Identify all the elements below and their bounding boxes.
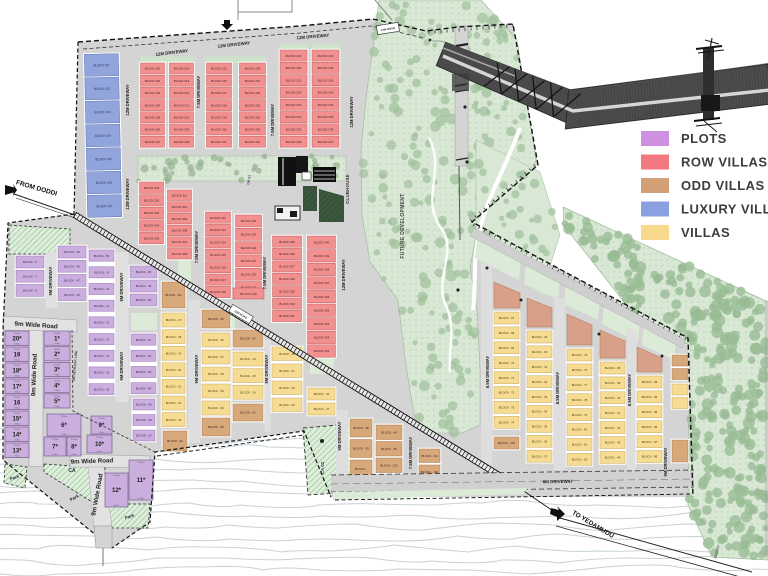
svg-text:BLOCK - 26: BLOCK - 26 <box>240 390 256 394</box>
svg-text:BLOCK 309: BLOCK 309 <box>172 217 188 221</box>
svg-text:BLOCK 225: BLOCK 225 <box>245 103 261 107</box>
svg-text:15.24m: 15.24m <box>138 462 145 464</box>
svg-text:ODD VILLAS: ODD VILLAS <box>681 178 765 193</box>
svg-text:15.24m: 15.24m <box>14 333 21 335</box>
svg-text:BLOCK 220: BLOCK 220 <box>211 128 227 132</box>
svg-text:BLOCK 231: BLOCK 231 <box>286 78 302 82</box>
svg-text:BLOCK - 78: BLOCK - 78 <box>572 398 588 402</box>
svg-text:BLOCK 302: BLOCK 302 <box>144 199 160 203</box>
svg-text:BLOCK - 39: BLOCK - 39 <box>605 381 621 385</box>
svg-text:BLOCK 229: BLOCK 229 <box>286 54 302 58</box>
svg-text:BLOCK - 6A: BLOCK - 6A <box>422 454 438 458</box>
svg-text:BLOCK - 62: BLOCK - 62 <box>279 386 295 390</box>
svg-text:BLOCK 102: BLOCK 102 <box>94 87 110 91</box>
svg-text:BLOCK 322: BLOCK 322 <box>241 246 257 250</box>
svg-text:BLOCK 227: BLOCK 227 <box>245 79 261 83</box>
svg-text:7.5M DRIVEWAY: 7.5M DRIVEWAY <box>262 257 267 290</box>
svg-text:BLOCK - 36: BLOCK - 36 <box>532 440 548 444</box>
svg-text:BLOCK 244: BLOCK 244 <box>318 54 334 58</box>
svg-text:9M DRIVEWAY: 9M DRIVEWAY <box>48 266 53 295</box>
svg-text:BLOCK - 86: BLOCK - 86 <box>642 425 658 429</box>
svg-text:BLOCK - 96: BLOCK - 96 <box>136 270 152 274</box>
svg-text:12M DRIVEWAY: 12M DRIVEWAY <box>125 84 130 115</box>
svg-text:BLOCK 201: BLOCK 201 <box>145 67 161 71</box>
svg-text:BLOCK - 85: BLOCK - 85 <box>642 410 658 414</box>
svg-text:CA: CA <box>68 468 76 474</box>
svg-text:BLOCK 301: BLOCK 301 <box>144 186 160 190</box>
svg-text:BLOCK 313: BLOCK 313 <box>210 228 226 232</box>
svg-text:BLOCK - 18: BLOCK - 18 <box>166 335 182 339</box>
svg-text:BLOCK - 94: BLOCK - 94 <box>167 439 183 443</box>
svg-text:BLOCK 236: BLOCK 236 <box>286 140 302 144</box>
svg-text:BLOCK - 11: BLOCK - 11 <box>94 304 110 308</box>
svg-text:BLOCK 327: BLOCK 327 <box>279 265 295 269</box>
svg-text:11*: 11* <box>137 478 146 484</box>
svg-text:15.24m: 15.24m <box>61 416 68 418</box>
svg-text:BLOCK 213: BLOCK 213 <box>174 79 190 83</box>
svg-text:BLOCK 240: BLOCK 240 <box>318 103 334 107</box>
svg-text:BLOCK - 56: BLOCK - 56 <box>208 338 224 342</box>
svg-text:12*: 12* <box>112 488 122 494</box>
svg-text:BLOCK 335: BLOCK 335 <box>314 308 330 312</box>
svg-text:BLOCK - 17: BLOCK - 17 <box>166 318 182 322</box>
svg-text:18*: 18* <box>12 369 22 375</box>
svg-text:BLOCK 232: BLOCK 232 <box>286 91 302 95</box>
svg-text:BLOCK - 79: BLOCK - 79 <box>572 413 588 417</box>
svg-text:BLOCK 317: BLOCK 317 <box>210 278 226 282</box>
svg-text:BLOCK - 54: BLOCK - 54 <box>136 386 152 390</box>
svg-text:BLOCK - 99: BLOCK - 99 <box>353 447 369 451</box>
svg-text:BLOCK 106: BLOCK 106 <box>96 181 112 185</box>
svg-text:BLOCK 209: BLOCK 209 <box>174 128 190 132</box>
svg-text:15.24m: 15.24m <box>14 381 21 383</box>
svg-text:9M DRIVEWAY: 9M DRIVEWAY <box>337 421 342 450</box>
svg-text:BLOCK - 49: BLOCK - 49 <box>136 284 152 288</box>
svg-text:BLOCK 205: BLOCK 205 <box>145 116 161 120</box>
svg-text:BLOCK - 61: BLOCK - 61 <box>240 411 256 415</box>
svg-text:BLOCK - 60: BLOCK - 60 <box>208 406 224 410</box>
svg-text:8.5M DRIVEWAY: 8.5M DRIVEWAY <box>627 374 632 407</box>
svg-text:BLOCK 330: BLOCK 330 <box>279 302 295 306</box>
svg-text:BLOCK 224: BLOCK 224 <box>245 116 261 120</box>
svg-text:BLOCK - 35: BLOCK - 35 <box>532 425 548 429</box>
svg-text:15.24m: 15.24m <box>14 429 21 431</box>
svg-text:15.24m: 15.24m <box>54 380 61 382</box>
svg-text:BLOCK - 80: BLOCK - 80 <box>572 428 588 432</box>
svg-text:12M DRIVEWAY: 12M DRIVEWAY <box>341 259 346 290</box>
svg-text:BLOCK 230: BLOCK 230 <box>286 66 302 70</box>
svg-text:BLOCK 103: BLOCK 103 <box>94 110 110 114</box>
svg-text:15.24m: 15.24m <box>52 439 59 441</box>
svg-text:BLOCK - 42: BLOCK - 42 <box>605 426 621 430</box>
svg-text:10*: 10* <box>95 442 105 448</box>
svg-text:BLOCK 306: BLOCK 306 <box>172 252 188 256</box>
svg-text:BLOCK - 43: BLOCK - 43 <box>605 441 621 445</box>
svg-text:BLOCK 321: BLOCK 321 <box>241 259 257 263</box>
svg-text:BLOCK 218: BLOCK 218 <box>211 103 227 107</box>
svg-text:9M DRIVEWAY: 9M DRIVEWAY <box>194 354 199 383</box>
svg-text:9.14m: 9.14m <box>14 455 20 457</box>
svg-text:9.14m: 9.14m <box>54 390 60 392</box>
svg-text:9.14m: 9.14m <box>99 432 105 434</box>
svg-text:15.24m: 15.24m <box>113 475 120 477</box>
svg-text:9.14m: 9.14m <box>54 359 60 361</box>
svg-text:8*: 8* <box>71 445 77 451</box>
svg-text:BLOCK - 34: BLOCK - 34 <box>532 410 548 414</box>
svg-text:BLOCK - 87: BLOCK - 87 <box>642 440 658 444</box>
svg-text:4*: 4* <box>54 383 60 389</box>
svg-text:BLOCK - 19: BLOCK - 19 <box>166 351 182 355</box>
svg-text:BLOCK - 41: BLOCK - 41 <box>605 411 621 415</box>
svg-text:BLOCK 334: BLOCK 334 <box>314 322 330 326</box>
svg-text:BLOCK 331: BLOCK 331 <box>279 314 295 318</box>
svg-text:BLOCK 216: BLOCK 216 <box>211 79 227 83</box>
svg-text:BLOCK 318: BLOCK 318 <box>210 290 226 294</box>
svg-text:BLOCK 324: BLOCK 324 <box>241 219 257 223</box>
svg-text:9.14m: 9.14m <box>14 391 20 393</box>
svg-text:BLOCK - 97: BLOCK - 97 <box>240 337 256 341</box>
svg-text:BLOCK - 37: BLOCK - 37 <box>532 454 548 458</box>
svg-text:BLOCK - 51: BLOCK - 51 <box>136 338 152 342</box>
svg-text:BLOCK 211: BLOCK 211 <box>174 103 190 107</box>
svg-text:BLOCK 239: BLOCK 239 <box>318 115 334 119</box>
svg-text:9.14m: 9.14m <box>54 374 60 376</box>
svg-text:BLOCK - 57: BLOCK - 57 <box>136 434 152 438</box>
svg-text:BLOCK - 59: BLOCK - 59 <box>208 389 224 393</box>
svg-text:BLOCK 234: BLOCK 234 <box>286 115 302 119</box>
svg-text:BLOCK - 25: BLOCK - 25 <box>240 374 256 378</box>
svg-text:BLOCK - 15: BLOCK - 15 <box>94 371 110 375</box>
svg-text:9.14m: 9.14m <box>54 343 60 345</box>
svg-text:BLOCK - 9A: BLOCK - 9A <box>166 293 182 297</box>
svg-text:BLOCK - 74: BLOCK - 74 <box>499 421 515 425</box>
svg-text:12M DRIVEWAY: 12M DRIVEWAY <box>125 178 130 209</box>
svg-text:7.5M DRIVEWAY: 7.5M DRIVEWAY <box>196 76 201 109</box>
svg-text:17*: 17* <box>12 385 22 391</box>
svg-text:BLOCK - 27: BLOCK - 27 <box>314 407 330 411</box>
svg-text:BLOCK - 71: BLOCK - 71 <box>499 376 515 380</box>
svg-text:BLOCK 237: BLOCK 237 <box>318 140 334 144</box>
svg-text:BLOCK - 63: BLOCK - 63 <box>279 403 295 407</box>
svg-text:BLOCK 325: BLOCK 325 <box>279 240 295 244</box>
svg-text:BLOCK - 50: BLOCK - 50 <box>136 298 152 302</box>
svg-text:8.5M DRIVEWAY: 8.5M DRIVEWAY <box>485 356 490 389</box>
svg-text:BLOCK 212: BLOCK 212 <box>174 91 190 95</box>
svg-text:BLOCK 337: BLOCK 337 <box>314 281 330 285</box>
svg-text:BLOCK 226: BLOCK 226 <box>245 91 261 95</box>
svg-text:BLOCK 235: BLOCK 235 <box>286 128 302 132</box>
svg-text:BLOCK - 68: BLOCK - 68 <box>499 331 515 335</box>
svg-text:5*: 5* <box>54 399 60 405</box>
svg-text:19: 19 <box>14 353 21 359</box>
svg-text:BLOCK 332: BLOCK 332 <box>314 349 330 353</box>
svg-text:9M DRIVEWAY: 9M DRIVEWAY <box>119 272 124 301</box>
svg-text:BLOCK - 96: BLOCK - 96 <box>208 425 224 429</box>
svg-text:BLOCK 105: BLOCK 105 <box>95 157 111 161</box>
svg-text:9.14m: 9.14m <box>97 451 103 453</box>
svg-text:15.24m: 15.24m <box>71 439 78 441</box>
svg-text:BLOCK 215: BLOCK 215 <box>211 67 227 71</box>
svg-text:20*: 20* <box>12 337 22 343</box>
svg-text:BLOCK 323: BLOCK 323 <box>241 233 257 237</box>
svg-text:BLOCK - 57: BLOCK - 57 <box>208 355 224 359</box>
svg-text:BLOCK - 48: BLOCK - 48 <box>64 293 80 297</box>
svg-text:BLOCK - 72: BLOCK - 72 <box>499 391 515 395</box>
svg-text:9.14m: 9.14m <box>14 423 20 425</box>
svg-text:BLOCK 303: BLOCK 303 <box>144 211 160 215</box>
svg-text:BLOCK - 31: BLOCK - 31 <box>532 365 548 369</box>
svg-text:9.14m: 9.14m <box>114 505 120 507</box>
svg-text:9.14m: 9.14m <box>54 406 60 408</box>
svg-text:BLOCK - 82: BLOCK - 82 <box>572 458 588 462</box>
svg-text:BLOCK 320: BLOCK 320 <box>241 272 257 276</box>
svg-text:BLOCK - 16: BLOCK - 16 <box>94 387 110 391</box>
svg-text:BLOCK - 83: BLOCK - 83 <box>642 380 658 384</box>
svg-text:9M DRIVEWAY: 9M DRIVEWAY <box>264 354 269 383</box>
svg-text:1*: 1* <box>54 336 60 342</box>
svg-text:VILLAS: VILLAS <box>681 225 730 240</box>
svg-text:BLOCK - 44: BLOCK - 44 <box>605 456 621 460</box>
svg-text:BLOCK - 95: BLOCK - 95 <box>208 317 224 321</box>
svg-text:9.14m: 9.14m <box>52 454 58 456</box>
svg-text:BLOCK - 45: BLOCK - 45 <box>64 250 80 254</box>
svg-text:BLOCK - 81: BLOCK - 81 <box>572 443 588 447</box>
svg-text:BLOCK - 107: BLOCK - 107 <box>498 441 516 445</box>
svg-text:BLOCK - 6: BLOCK - 6 <box>23 260 37 264</box>
svg-text:7*: 7* <box>52 445 58 451</box>
svg-text:BLOCK - 53: BLOCK - 53 <box>136 370 152 374</box>
svg-text:BLOCK - 73: BLOCK - 73 <box>499 406 515 410</box>
svg-text:BLOCK - 22: BLOCK - 22 <box>166 401 182 405</box>
svg-text:BLOCK - 32: BLOCK - 32 <box>532 380 548 384</box>
svg-text:BLOCK 104: BLOCK 104 <box>95 134 111 138</box>
svg-text:15.24m: 15.24m <box>14 349 21 351</box>
svg-text:3*: 3* <box>54 368 60 374</box>
svg-text:BLOCK - 47: BLOCK - 47 <box>64 279 80 283</box>
svg-text:BLOCK 214: BLOCK 214 <box>174 67 190 71</box>
svg-text:BLOCK - 12: BLOCK - 12 <box>94 321 110 325</box>
svg-text:LUXURY VILLAS: LUXURY VILLAS <box>681 202 768 217</box>
svg-text:BLOCK - 9: BLOCK - 9 <box>95 271 109 275</box>
svg-text:BLOCK 203: BLOCK 203 <box>145 91 161 95</box>
svg-text:BLOCK - 64: BLOCK - 64 <box>381 430 397 434</box>
svg-text:7.5M DRIVEWAY: 7.5M DRIVEWAY <box>194 231 199 264</box>
svg-text:BLOCK - 33: BLOCK - 33 <box>532 395 548 399</box>
svg-text:9.14m: 9.14m <box>14 359 20 361</box>
svg-text:BLOCK 208: BLOCK 208 <box>174 140 190 144</box>
svg-text:BLOCK 339: BLOCK 339 <box>314 254 330 258</box>
svg-text:BLOCK 242: BLOCK 242 <box>318 78 334 82</box>
svg-text:9M DRIVEWAY: 9M DRIVEWAY <box>663 447 668 476</box>
svg-text:14*: 14* <box>12 433 22 439</box>
svg-text:BLOCK - 24: BLOCK - 24 <box>240 357 256 361</box>
svg-text:BLOCK - 102: BLOCK - 102 <box>380 463 398 467</box>
svg-text:BLOCK - 69: BLOCK - 69 <box>499 346 515 350</box>
svg-text:9m Wide Road: 9m Wide Road <box>71 457 114 465</box>
svg-text:BLOCK 326: BLOCK 326 <box>279 252 295 256</box>
svg-text:BLOCK 340: BLOCK 340 <box>314 240 330 244</box>
svg-text:BLOCK 329: BLOCK 329 <box>279 289 295 293</box>
svg-text:8.5M DRIVEWAY: 8.5M DRIVEWAY <box>555 372 560 405</box>
svg-text:BLOCK - 65: BLOCK - 65 <box>381 447 397 451</box>
svg-text:9m Wide Road: 9m Wide Road <box>30 353 38 396</box>
svg-text:BLOCK - 20: BLOCK - 20 <box>166 368 182 372</box>
svg-text:15.24m: 15.24m <box>14 365 21 367</box>
svg-text:BLOCK - 10: BLOCK - 10 <box>94 287 110 291</box>
svg-text:12M DRIVEWAY: 12M DRIVEWAY <box>349 96 354 127</box>
svg-text:BLOCK 305: BLOCK 305 <box>144 236 160 240</box>
svg-text:BLOCK - 56: BLOCK - 56 <box>136 418 152 422</box>
svg-text:CLUBHOUSE: CLUBHOUSE <box>345 174 350 204</box>
svg-text:ROW VILLAS: ROW VILLAS <box>681 155 768 170</box>
svg-text:BLOCK 202: BLOCK 202 <box>145 79 161 83</box>
svg-text:BLOCK - 7: BLOCK - 7 <box>23 274 37 278</box>
svg-text:BLOCK 223: BLOCK 223 <box>245 128 261 132</box>
svg-text:15.24m: 15.24m <box>54 333 61 335</box>
svg-text:BLOCK - 75: BLOCK - 75 <box>572 353 588 357</box>
svg-text:6M DRIVEWAY: 6M DRIVEWAY <box>543 479 573 485</box>
svg-text:BLOCK 233: BLOCK 233 <box>286 103 302 107</box>
svg-text:BLOCK - 10: BLOCK - 10 <box>314 392 330 396</box>
svg-text:BLOCK 206: BLOCK 206 <box>145 128 161 132</box>
svg-text:BLOCK 307: BLOCK 307 <box>172 240 188 244</box>
svg-text:BLOCK 207: BLOCK 207 <box>145 140 161 144</box>
svg-text:BLOCK 107: BLOCK 107 <box>96 204 112 208</box>
svg-text:BLOCK - 8: BLOCK - 8 <box>23 289 37 293</box>
svg-text:BLOCK - 46: BLOCK - 46 <box>64 264 80 268</box>
svg-text:BLOCK - 21: BLOCK - 21 <box>166 385 182 389</box>
svg-text:BLOCK 243: BLOCK 243 <box>318 66 334 70</box>
svg-text:BLOCK 336: BLOCK 336 <box>314 295 330 299</box>
svg-text:BLOCK 217: BLOCK 217 <box>211 91 227 95</box>
svg-text:BLOCK 304: BLOCK 304 <box>144 224 160 228</box>
svg-text:BLOCK 241: BLOCK 241 <box>318 91 334 95</box>
svg-text:BLOCK - 52: BLOCK - 52 <box>136 354 152 358</box>
svg-text:BLOCK 314: BLOCK 314 <box>210 241 226 245</box>
svg-text:BLOCK 219: BLOCK 219 <box>211 116 227 120</box>
svg-text:BLOCK 328: BLOCK 328 <box>279 277 295 281</box>
svg-text:BLOCK 204: BLOCK 204 <box>145 103 161 107</box>
svg-text:BLOCK - 61: BLOCK - 61 <box>279 369 295 373</box>
svg-text:6*: 6* <box>61 423 67 429</box>
svg-text:BLOCK 228: BLOCK 228 <box>245 67 261 71</box>
svg-text:BLOCK 311: BLOCK 311 <box>172 193 188 197</box>
svg-text:BLOCK - 98: BLOCK - 98 <box>353 426 369 430</box>
svg-text:BLOCK - 14: BLOCK - 14 <box>94 354 110 358</box>
svg-text:BLOCK - 23: BLOCK - 23 <box>166 418 182 422</box>
svg-text:BLOCK - 40: BLOCK - 40 <box>605 396 621 400</box>
svg-text:BLOCK - 50: BLOCK - 50 <box>94 254 110 258</box>
svg-text:BLOCK 101: BLOCK 101 <box>93 63 109 67</box>
svg-text:BLOCK - 55: BLOCK - 55 <box>136 403 152 407</box>
svg-text:15.24m: 15.24m <box>54 349 61 351</box>
svg-text:BLOCK - 38: BLOCK - 38 <box>605 366 621 370</box>
svg-text:BLOCK - 29: BLOCK - 29 <box>532 335 548 339</box>
svg-text:15.24m: 15.24m <box>14 445 21 447</box>
svg-text:BLOCK - 77: BLOCK - 77 <box>572 383 588 387</box>
svg-text:BLOCK 222: BLOCK 222 <box>245 140 261 144</box>
svg-text:9.14m: 9.14m <box>71 454 77 456</box>
svg-text:BLOCK 210: BLOCK 210 <box>174 116 190 120</box>
svg-text:BLOCK - 70: BLOCK - 70 <box>499 361 515 365</box>
svg-text:BLOCK - 67: BLOCK - 67 <box>499 316 515 320</box>
svg-text:7.5M DRIVEWAY: 7.5M DRIVEWAY <box>408 437 413 470</box>
svg-text:BLOCK 221: BLOCK 221 <box>211 140 227 144</box>
svg-text:BLOCK - 30: BLOCK - 30 <box>532 350 548 354</box>
svg-text:BLOCK - 13: BLOCK - 13 <box>94 337 110 341</box>
svg-text:BLOCK -: BLOCK - <box>355 467 367 471</box>
svg-text:FUTURE DEVELOPMENT: FUTURE DEVELOPMENT <box>400 193 406 258</box>
svg-text:9.14m: 9.14m <box>14 439 20 441</box>
svg-text:BLOCK 310: BLOCK 310 <box>172 205 188 209</box>
svg-text:PLOTS: PLOTS <box>681 131 727 146</box>
svg-text:BLOCK 308: BLOCK 308 <box>172 229 188 233</box>
svg-text:BLOCK 338: BLOCK 338 <box>314 268 330 272</box>
svg-text:BLOCK - 84: BLOCK - 84 <box>642 395 658 399</box>
svg-text:16: 16 <box>14 401 21 407</box>
svg-text:9.14m: 9.14m <box>61 434 67 436</box>
svg-text:15.24m: 15.24m <box>14 397 21 399</box>
svg-text:15.24m: 15.24m <box>54 365 61 367</box>
svg-text:9.14m: 9.14m <box>14 407 20 409</box>
svg-text:BLOCK - 58: BLOCK - 58 <box>208 372 224 376</box>
svg-text:9M DRIVEWAY: 9M DRIVEWAY <box>119 351 124 380</box>
svg-text:13*: 13* <box>12 449 22 455</box>
svg-text:15.24m: 15.24m <box>96 437 103 439</box>
svg-text:9.14m: 9.14m <box>14 375 20 377</box>
svg-text:BLOCK 312: BLOCK 312 <box>210 216 226 220</box>
svg-text:BLOCK - 88: BLOCK - 88 <box>642 455 658 459</box>
svg-text:BLOCK - 76: BLOCK - 76 <box>572 368 588 372</box>
svg-text:15.24m: 15.24m <box>54 396 61 398</box>
svg-text:9.14m: 9.14m <box>138 498 144 500</box>
svg-text:BLOCK 316: BLOCK 316 <box>210 265 226 269</box>
svg-text:15.24m: 15.24m <box>98 418 105 420</box>
svg-text:BLOCK 333: BLOCK 333 <box>314 336 330 340</box>
svg-text:BLOCK 238: BLOCK 238 <box>318 128 334 132</box>
svg-text:15.24m: 15.24m <box>14 413 21 415</box>
svg-text:BLOCK 315: BLOCK 315 <box>210 253 226 257</box>
svg-text:7.5M DRIVEWAY: 7.5M DRIVEWAY <box>270 104 275 137</box>
svg-text:BLOCK 318: BLOCK 318 <box>240 292 257 296</box>
svg-text:15*: 15* <box>12 417 22 423</box>
svg-text:2*: 2* <box>54 352 60 358</box>
svg-text:9.14m: 9.14m <box>14 343 20 345</box>
